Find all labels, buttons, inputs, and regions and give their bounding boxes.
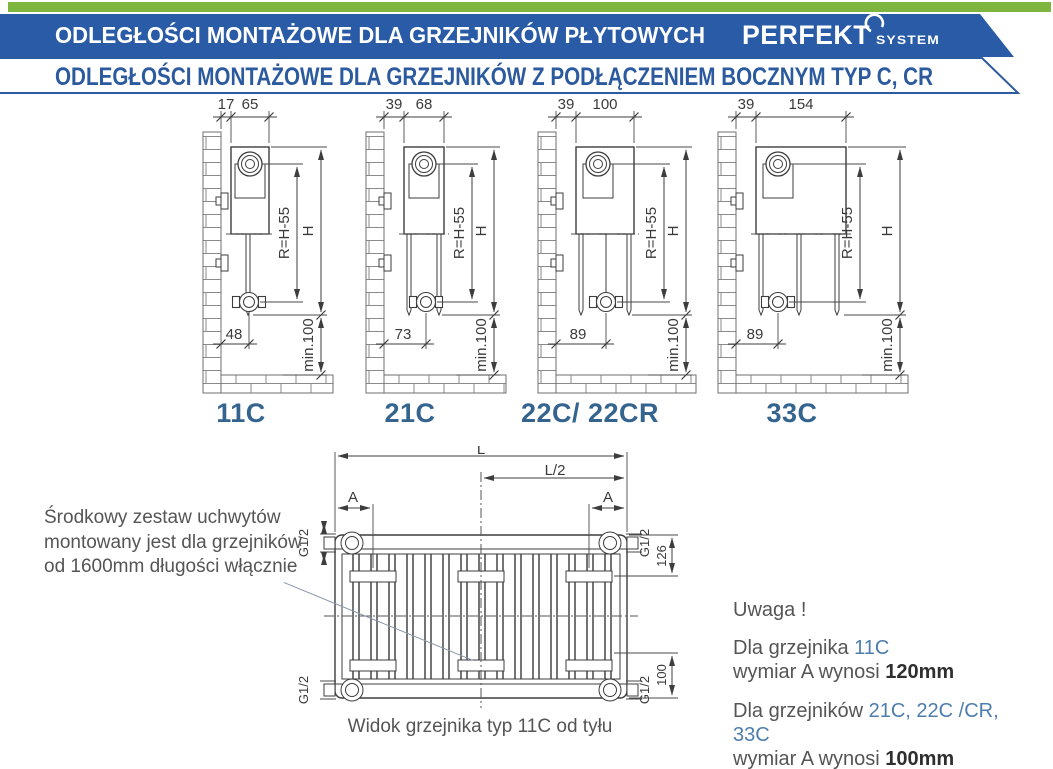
uwaga-note: Uwaga ! Dla grzejnika 11C wymiar A wynos…: [733, 598, 1033, 769]
dim-r-label: R=H-55: [643, 207, 660, 259]
diagram-22c: 39 100 R=H-55 H min.100 89: [518, 97, 713, 407]
dim-r-label: R=H-55: [839, 207, 856, 259]
diagram-rear-view: L L/2 A A G1/2 G1/2 G1/2 G1/2 126 100: [278, 446, 688, 746]
diagram-21c: 39 68 R=H-55 H min.100 73: [346, 97, 518, 407]
dim-r-label: R=H-55: [276, 207, 293, 259]
dim-wall-gap: 39: [558, 97, 575, 113]
dim-h-label: H: [300, 226, 317, 237]
dim-g12-bottom-left: G1/2: [296, 676, 311, 704]
dim-a-right: A: [603, 489, 613, 506]
page-subtitle: ODLEGŁOŚCI MONTAŻOWE DLA GRZEJNIKÓW Z PO…: [55, 61, 933, 91]
radiator-side-view: [551, 147, 639, 315]
uwaga-value: 120mm: [885, 661, 954, 683]
note-line: od 1600mm długości włącznie: [44, 555, 304, 580]
dim-l: L: [477, 446, 485, 458]
catalog-page: ODLEGŁOŚCI MONTAŻOWE DLA GRZEJNIKÓW PŁYT…: [0, 0, 1053, 769]
uwaga-value: 100mm: [885, 748, 954, 769]
radiator-side-view: [379, 147, 449, 315]
dim-bottom: 73: [395, 326, 412, 343]
dimensions: 17 65 R=H-55 H min.100 48: [213, 97, 327, 380]
dimensions: 39 154 R=H-55 H min.100 89: [728, 97, 906, 380]
dim-r-label: R=H-55: [451, 207, 468, 259]
dim-wall-gap: 39: [386, 97, 403, 113]
dim-min-label: min.100: [300, 318, 317, 371]
dim-depth: 68: [416, 97, 433, 113]
radiator-rear-body: [324, 472, 638, 708]
dim-wall-gap: 17: [218, 97, 235, 113]
dim-g12-bottom-right: G1/2: [637, 676, 652, 704]
uwaga-paragraph-others: Dla grzejników 21C, 22C /CR, 33C wymiar …: [733, 699, 1033, 769]
uwaga-text: wymiar A wynosi: [733, 748, 885, 769]
radiator-side-view: [731, 147, 851, 315]
type-label-21c: 21C: [345, 398, 475, 429]
dim-min-label: min.100: [879, 318, 896, 371]
uwaga-text: Dla grzejnika: [733, 637, 854, 659]
uwaga-title: Uwaga !: [733, 598, 1033, 622]
dim-bottom: 89: [747, 326, 764, 343]
dim-126: 126: [654, 545, 669, 567]
dim-depth: 65: [242, 97, 259, 113]
type-label-11c: 11C: [176, 398, 306, 429]
page-title: ODLEGŁOŚCI MONTAŻOWE DLA GRZEJNIKÓW PŁYT…: [55, 21, 705, 48]
dim-min-label: min.100: [665, 318, 682, 371]
dim-g12-top-right: G1/2: [637, 529, 652, 557]
dim-h-label: H: [473, 226, 490, 237]
uwaga-text: Dla grzejników: [733, 700, 869, 722]
dim-a-left: A: [348, 489, 358, 506]
header-banner: ODLEGŁOŚCI MONTAŻOWE DLA GRZEJNIKÓW PŁYT…: [0, 0, 1053, 96]
brand-logo-text: PERFEKT: [742, 20, 870, 50]
uwaga-text: wymiar A wynosi: [733, 661, 885, 683]
dimensions: 39 68 R=H-55 H min.100 73: [376, 97, 500, 380]
rear-view-caption: Widok grzejnika typ 11C od tyłu: [330, 716, 630, 738]
center-bracket-note: Środkowy zestaw uchwytów montowany jest …: [44, 506, 304, 580]
dimensions: 39 100 R=H-55 H min.100 89: [548, 97, 692, 380]
dim-bottom: 89: [570, 326, 587, 343]
green-top-bar: [8, 2, 1051, 12]
note-line: Środkowy zestaw uchwytów: [44, 506, 304, 531]
brand-logo-subtext: SYSTEM: [876, 33, 940, 47]
dim-depth: 154: [788, 97, 813, 113]
dim-h-label: H: [879, 226, 896, 237]
dim-wall-gap: 39: [738, 97, 755, 113]
dim-h-label: H: [665, 226, 682, 237]
uwaga-paragraph-11c: Dla grzejnika 11C wymiar A wynosi 120mm: [733, 636, 1033, 684]
dim-depth: 100: [592, 97, 617, 113]
note-line: montowany jest dla grzejników: [44, 531, 304, 556]
radiator-side-view: [216, 147, 274, 315]
dim-100: 100: [654, 664, 669, 686]
type-label-33c: 33C: [727, 398, 857, 429]
diagram-11c: 17 65 R=H-55 H min.100 48: [183, 97, 345, 407]
dim-l2: L/2: [545, 462, 566, 479]
uwaga-type-highlight: 11C: [854, 637, 889, 659]
type-label-22c-22cr: 22C/ 22CR: [495, 398, 685, 429]
dim-min-label: min.100: [473, 318, 490, 371]
dim-bottom: 48: [226, 326, 243, 343]
diagram-33c: 39 154 R=H-55 H min.100 89: [698, 97, 926, 407]
